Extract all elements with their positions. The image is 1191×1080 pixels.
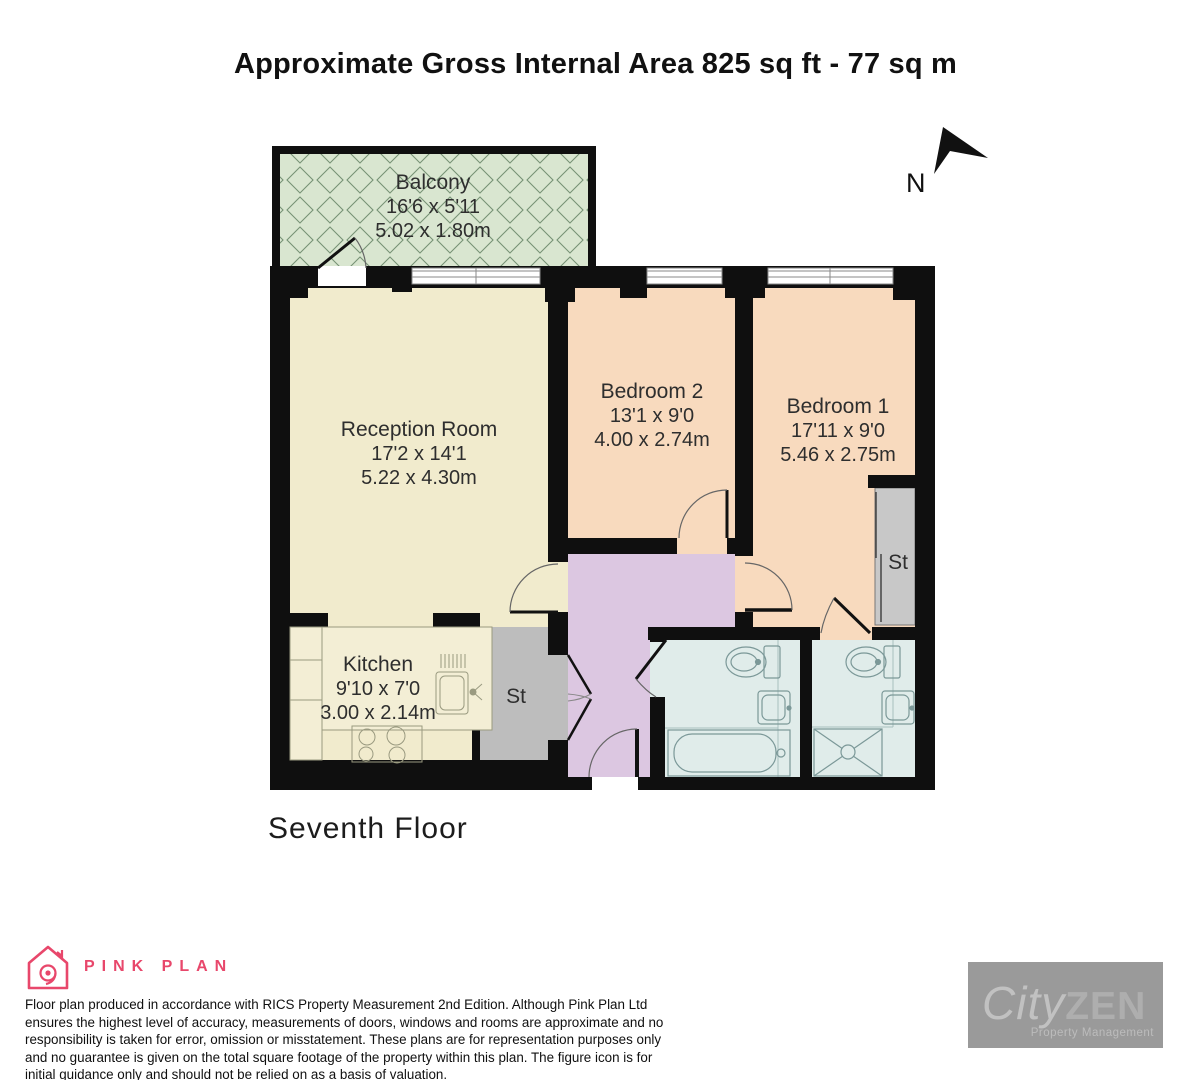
bedroom2-window	[647, 268, 722, 284]
balcony-label: Balcony 16'6 x 5'11 5.02 x 1.80m	[375, 171, 491, 243]
balcony-dims-m: 5.02 x 1.80m	[375, 219, 491, 243]
entrance-door-opening	[592, 777, 638, 790]
kitchen-label: Kitchen 9'10 x 7'0 3.00 x 2.14m	[320, 653, 436, 725]
bedroom1-label: Bedroom 1 17'11 x 9'0 5.46 x 2.75m	[780, 395, 896, 467]
store-hall-label: St	[506, 685, 526, 709]
reception-label: Reception Room 17'2 x 14'1 5.22 x 4.30m	[341, 418, 497, 490]
store-bedroom-label: St	[888, 551, 908, 575]
north-arrow-icon	[934, 127, 988, 174]
kitchen-drainer	[441, 654, 465, 668]
reception-dims-ft: 17'2 x 14'1	[341, 442, 497, 466]
floor-name: Seventh Floor	[268, 812, 468, 846]
floorplan-drawing	[0, 0, 1191, 1080]
kitchen-dims-ft: 9'10 x 7'0	[320, 677, 436, 701]
bedroom1-dims-m: 5.46 x 2.75m	[780, 443, 896, 467]
windows	[412, 268, 893, 284]
reception-dims-m: 5.22 x 4.30m	[341, 466, 497, 490]
reception-door-opening	[548, 562, 568, 612]
balcony-dims-ft: 16'6 x 5'11	[375, 195, 491, 219]
hall-floor-upper	[568, 554, 735, 627]
bedroom2-name: Bedroom 2	[594, 380, 710, 404]
bedroom1-dims-ft: 17'11 x 9'0	[780, 419, 896, 443]
bedroom2-label: Bedroom 2 13'1 x 9'0 4.00 x 2.74m	[594, 380, 710, 452]
balcony-door-opening	[318, 266, 366, 286]
pink-plan-house-icon	[26, 944, 70, 990]
cityzen-wordmark: CityZEN	[982, 976, 1146, 1030]
bedroom1-window	[768, 268, 893, 284]
reception-window	[412, 268, 540, 284]
cityzen-word-city: City	[982, 977, 1065, 1029]
bedroom2-dims-ft: 13'1 x 9'0	[594, 404, 710, 428]
bedroom1-name: Bedroom 1	[780, 395, 896, 419]
kitchen-name: Kitchen	[320, 653, 436, 677]
pink-plan-wordmark: PINK PLAN	[84, 958, 233, 976]
bedroom2-dims-m: 4.00 x 2.74m	[594, 428, 710, 452]
cityzen-logo: CityZEN Property Management	[968, 962, 1163, 1048]
kitchen-dims-m: 3.00 x 2.14m	[320, 701, 436, 725]
kitchen-counter-left	[290, 627, 322, 760]
disclaimer-text: Floor plan produced in accordance with R…	[25, 996, 685, 1080]
cityzen-word-zen: ZEN	[1065, 985, 1146, 1028]
floorplan-page: Approximate Gross Internal Area 825 sq f…	[0, 0, 1191, 1080]
north-label: N	[906, 168, 926, 199]
reception-name: Reception Room	[341, 418, 497, 442]
cityzen-tagline: Property Management	[1031, 1027, 1154, 1039]
bedroom1-door-opening	[735, 556, 753, 612]
pink-plan-branding: PINK PLAN	[26, 944, 233, 990]
store-hall-door-gap	[548, 655, 568, 740]
balcony-name: Balcony	[375, 171, 491, 195]
bedroom2-door-opening	[677, 538, 727, 554]
